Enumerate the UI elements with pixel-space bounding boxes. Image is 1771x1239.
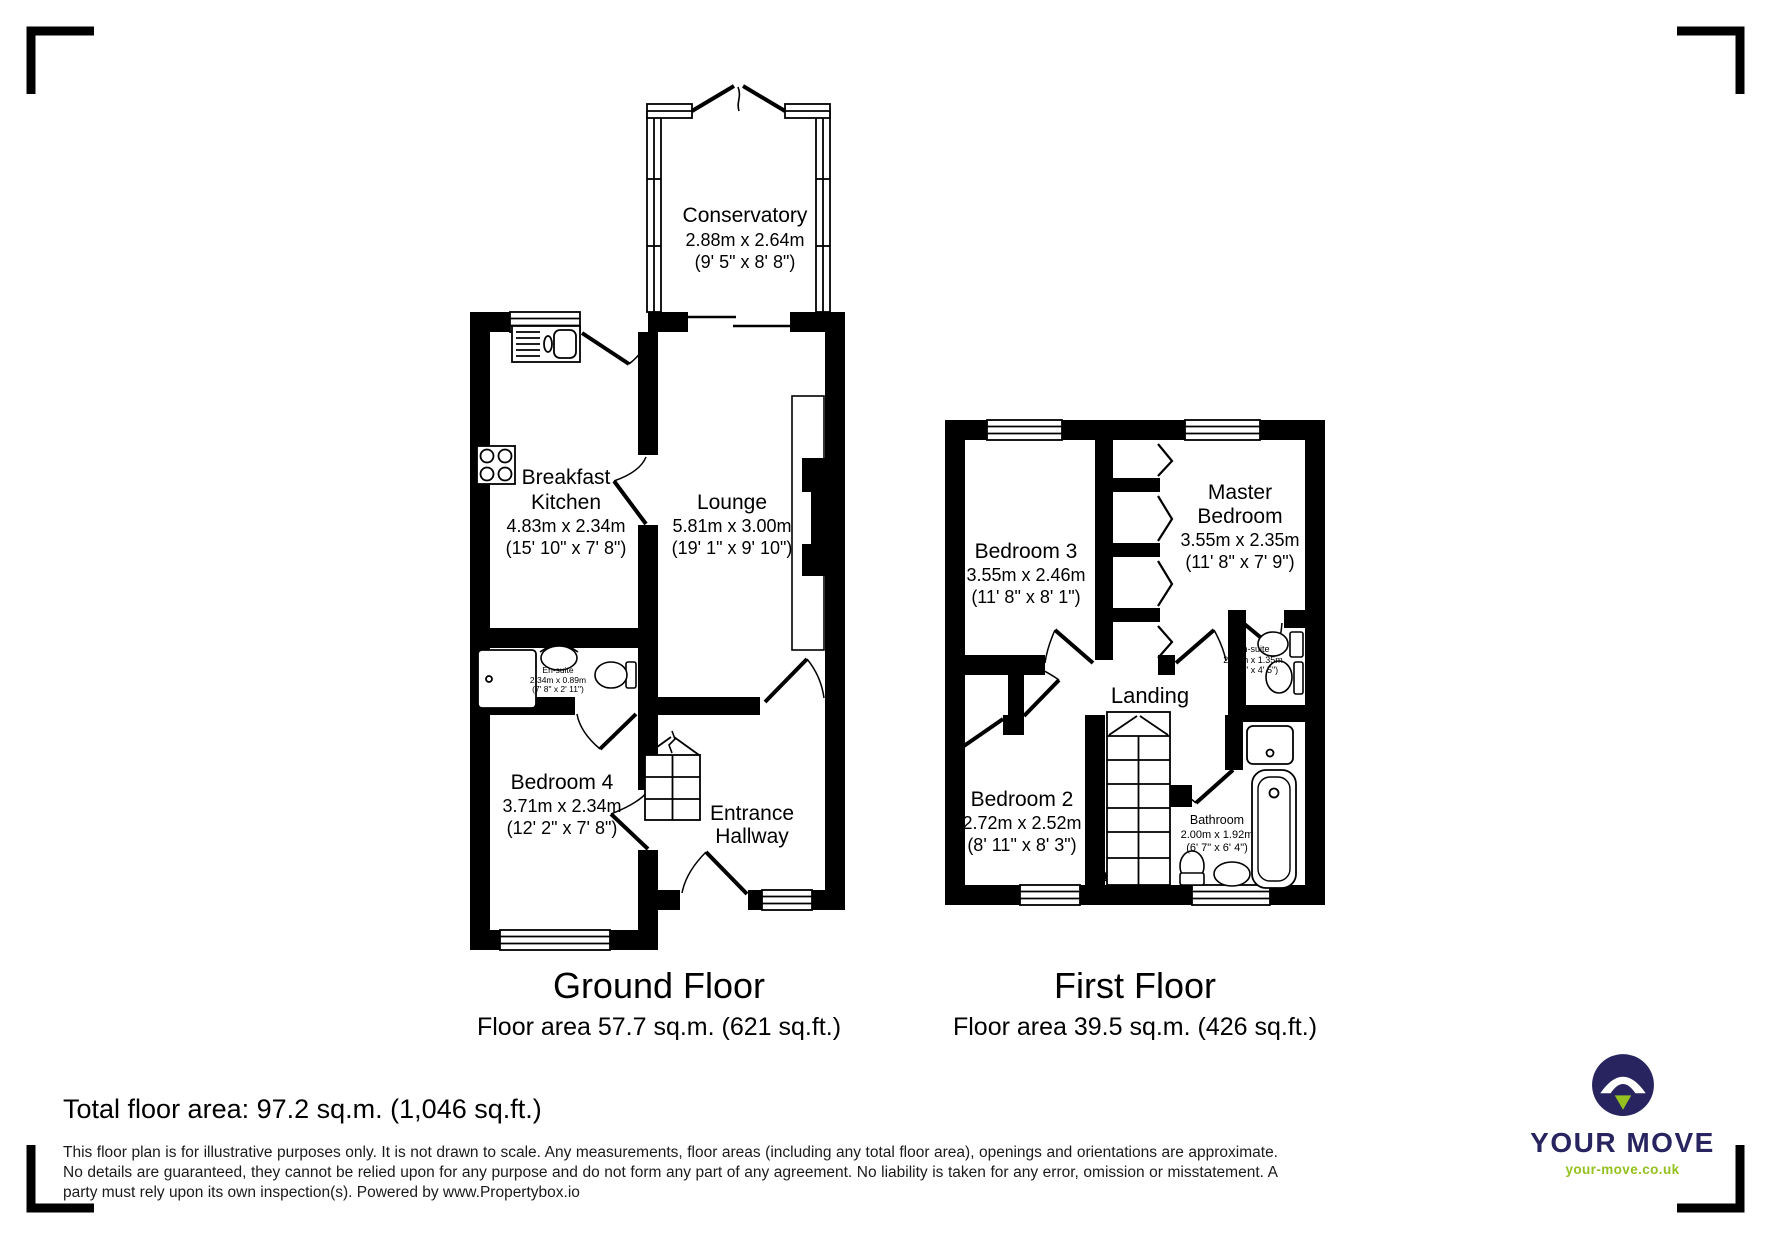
svg-text:Lounge: Lounge <box>697 491 767 514</box>
brand-url: your-move.co.uk <box>1525 1162 1720 1177</box>
svg-text:3.71m x 2.34m: 3.71m x 2.34m <box>502 796 621 816</box>
svg-text:2.34m x 1.35m: 2.34m x 1.35m <box>1223 655 1283 665</box>
svg-text:En-suite: En-suite <box>1236 644 1269 654</box>
svg-text:Master: Master <box>1208 481 1272 504</box>
ground-floor-caption: Ground Floor Floor area 57.7 sq.m. (621 … <box>409 965 909 1042</box>
svg-text:2.72m x 2.52m: 2.72m x 2.52m <box>962 813 1081 833</box>
door-arc <box>577 714 636 749</box>
room-bedroom2: Bedroom 2 2.72m x 2.52m (8' 11" x 8' 3") <box>962 788 1081 855</box>
hob <box>477 446 515 484</box>
room-bathroom: Bathroom 2.00m x 1.92m (6' 7" x 6' 4") <box>1181 813 1254 854</box>
floorplan-canvas: Conservatory 2.88m x 2.64m (9' 5" x 8' 8… <box>0 0 1771 1239</box>
svg-text:5.81m x 3.00m: 5.81m x 3.00m <box>672 516 791 536</box>
svg-text:2.88m x 2.64m: 2.88m x 2.64m <box>685 230 804 250</box>
door-arc <box>614 457 646 524</box>
window <box>1020 885 1080 905</box>
svg-text:Conservatory: Conservatory <box>683 204 808 227</box>
window <box>1185 420 1260 440</box>
door-arc <box>1176 630 1226 663</box>
window <box>762 890 812 910</box>
fireplace <box>792 396 825 650</box>
door-arc <box>1045 630 1093 663</box>
svg-text:(19' 1" x 9' 10"): (19' 1" x 9' 10") <box>672 538 793 558</box>
svg-text:En-suite: En-suite <box>542 665 573 675</box>
svg-text:(11' 8" x 7' 9"): (11' 8" x 7' 9") <box>1185 552 1294 572</box>
first-floor-area: Floor area 39.5 sq.m. (426 sq.ft.) <box>885 1013 1385 1042</box>
room-breakfast-kitchen: Breakfast Kitchen 4.83m x 2.34m (15' 10"… <box>506 466 627 558</box>
first-floor-caption: First Floor Floor area 39.5 sq.m. (426 s… <box>885 965 1385 1042</box>
room-bedroom3: Bedroom 3 3.55m x 2.46m (11' 8" x 8' 1") <box>966 540 1085 607</box>
svg-text:3.55m x 2.35m: 3.55m x 2.35m <box>1180 530 1299 550</box>
kitchen-sink <box>512 326 580 362</box>
svg-text:4.83m x 2.34m: 4.83m x 2.34m <box>506 516 625 536</box>
conservatory-doors <box>692 86 785 111</box>
shower <box>478 650 536 708</box>
crop-mark-top-right <box>1677 31 1740 94</box>
room-bedroom4: Bedroom 4 3.71m x 2.34m (12' 2" x 7' 8") <box>502 771 621 838</box>
svg-text:Bathroom: Bathroom <box>1190 813 1244 827</box>
door-arc <box>765 659 824 702</box>
svg-text:(9' 5" x 8' 8"): (9' 5" x 8' 8") <box>695 252 796 272</box>
svg-text:(8' 11" x 8' 3"): (8' 11" x 8' 3") <box>967 835 1076 855</box>
floorplan-page: Conservatory 2.88m x 2.64m (9' 5" x 8' 8… <box>0 0 1771 1239</box>
svg-text:Hallway: Hallway <box>715 825 789 848</box>
ground-floor-walls <box>470 312 845 950</box>
disclaimer-text: This floor plan is for illustrative purp… <box>63 1143 1278 1202</box>
svg-text:Breakfast: Breakfast <box>522 466 611 489</box>
conservatory-threshold <box>688 317 790 326</box>
first-floor-plan: Bedroom 3 3.55m x 2.46m (11' 8" x 8' 1")… <box>945 420 1325 905</box>
svg-text:2.00m x 1.92m: 2.00m x 1.92m <box>1181 829 1254 841</box>
wardrobe-doors <box>1158 444 1172 658</box>
room-entrance-hallway: Entrance Hallway <box>710 802 794 848</box>
svg-text:Bedroom 3: Bedroom 3 <box>975 540 1078 563</box>
svg-text:(7' 8" x 2' 11"): (7' 8" x 2' 11") <box>532 684 584 694</box>
svg-text:(11' 8" x 8' 1"): (11' 8" x 8' 1") <box>971 587 1080 607</box>
stairs <box>1107 712 1170 885</box>
svg-text:(7' 8" x 4' 5"): (7' 8" x 4' 5") <box>1228 665 1278 675</box>
svg-text:Kitchen: Kitchen <box>531 491 601 514</box>
room-ensuite-gf: En-suite 2.34m x 0.89m (7' 8" x 2' 11") <box>530 665 586 694</box>
ground-floor-area: Floor area 57.7 sq.m. (621 sq.ft.) <box>409 1013 909 1042</box>
brand-logo: YOUR MOVE your-move.co.uk <box>1525 1052 1720 1177</box>
room-master-bedroom: Master Bedroom 3.55m x 2.35m (11' 8" x 7… <box>1180 481 1299 572</box>
your-move-logo-icon <box>1590 1052 1656 1118</box>
room-landing: Landing <box>1111 683 1189 708</box>
window <box>1192 885 1270 905</box>
svg-text:(15' 10" x 7' 8"): (15' 10" x 7' 8") <box>506 538 627 558</box>
svg-text:(6' 7" x 6' 4"): (6' 7" x 6' 4") <box>1186 842 1248 854</box>
front-door-arc <box>682 852 747 894</box>
toilet <box>595 662 636 688</box>
basin <box>1214 862 1250 886</box>
first-floor-title: First Floor <box>885 965 1385 1007</box>
svg-text:Bedroom 2: Bedroom 2 <box>971 788 1074 811</box>
svg-text:Entrance: Entrance <box>710 802 794 825</box>
toilet <box>1180 851 1204 885</box>
svg-text:Bedroom 4: Bedroom 4 <box>511 771 614 794</box>
bath <box>1252 770 1296 888</box>
ground-floor-title: Ground Floor <box>409 965 909 1007</box>
total-floor-area: Total floor area: 97.2 sq.m. (1,046 sq.f… <box>63 1094 542 1125</box>
brand-name: YOUR MOVE <box>1525 1127 1720 1159</box>
svg-text:(12' 2" x 7' 8"): (12' 2" x 7' 8") <box>507 818 618 838</box>
shower <box>1247 726 1293 764</box>
svg-text:Bedroom: Bedroom <box>1197 505 1282 528</box>
ground-floor-plan: Conservatory 2.88m x 2.64m (9' 5" x 8' 8… <box>470 86 845 950</box>
window <box>500 930 610 950</box>
svg-text:Landing: Landing <box>1111 683 1189 708</box>
room-conservatory: Conservatory 2.88m x 2.64m (9' 5" x 8' 8… <box>683 204 808 272</box>
svg-text:3.55m x 2.46m: 3.55m x 2.46m <box>966 565 1085 585</box>
crop-mark-top-left <box>31 31 94 94</box>
room-lounge: Lounge 5.81m x 3.00m (19' 1" x 9' 10") <box>672 491 793 558</box>
window <box>987 420 1062 440</box>
